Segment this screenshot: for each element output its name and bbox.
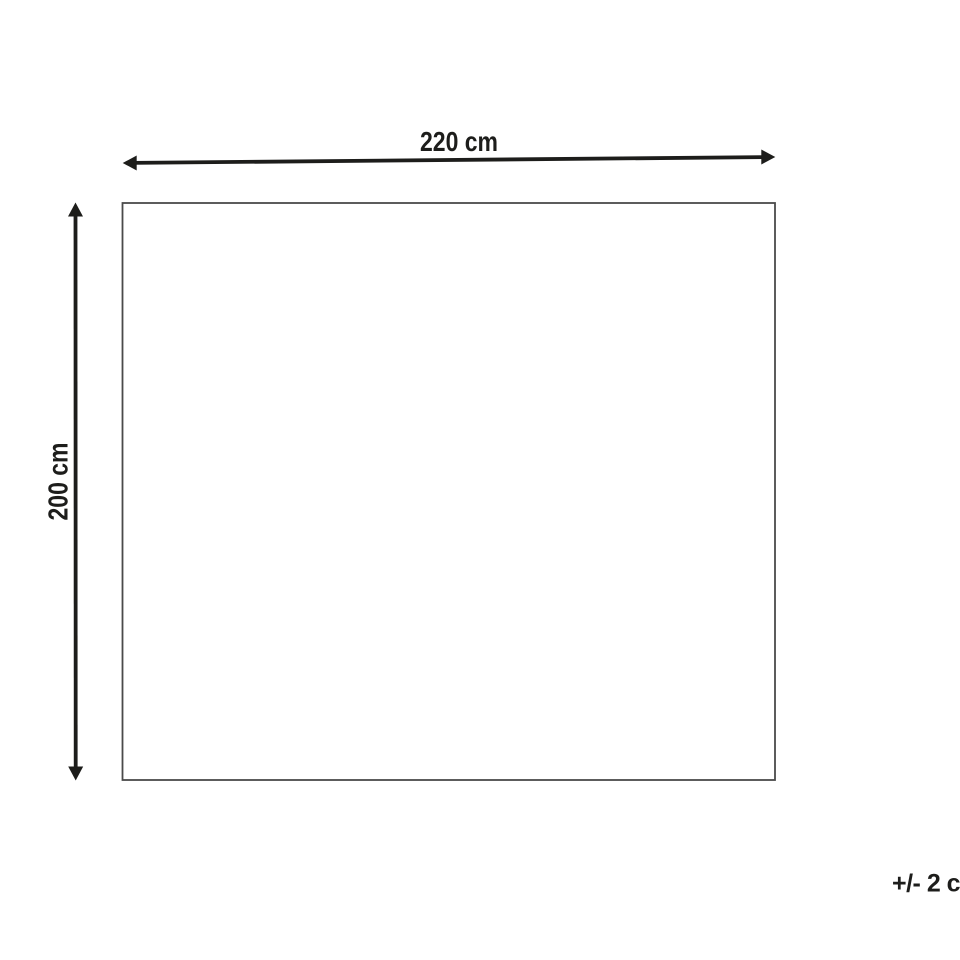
svg-text:200 cm: 200 cm [43, 443, 74, 521]
svg-text:220 cm: 220 cm [420, 126, 498, 157]
svg-text:+/- 2 cm: +/- 2 cm [892, 870, 960, 898]
